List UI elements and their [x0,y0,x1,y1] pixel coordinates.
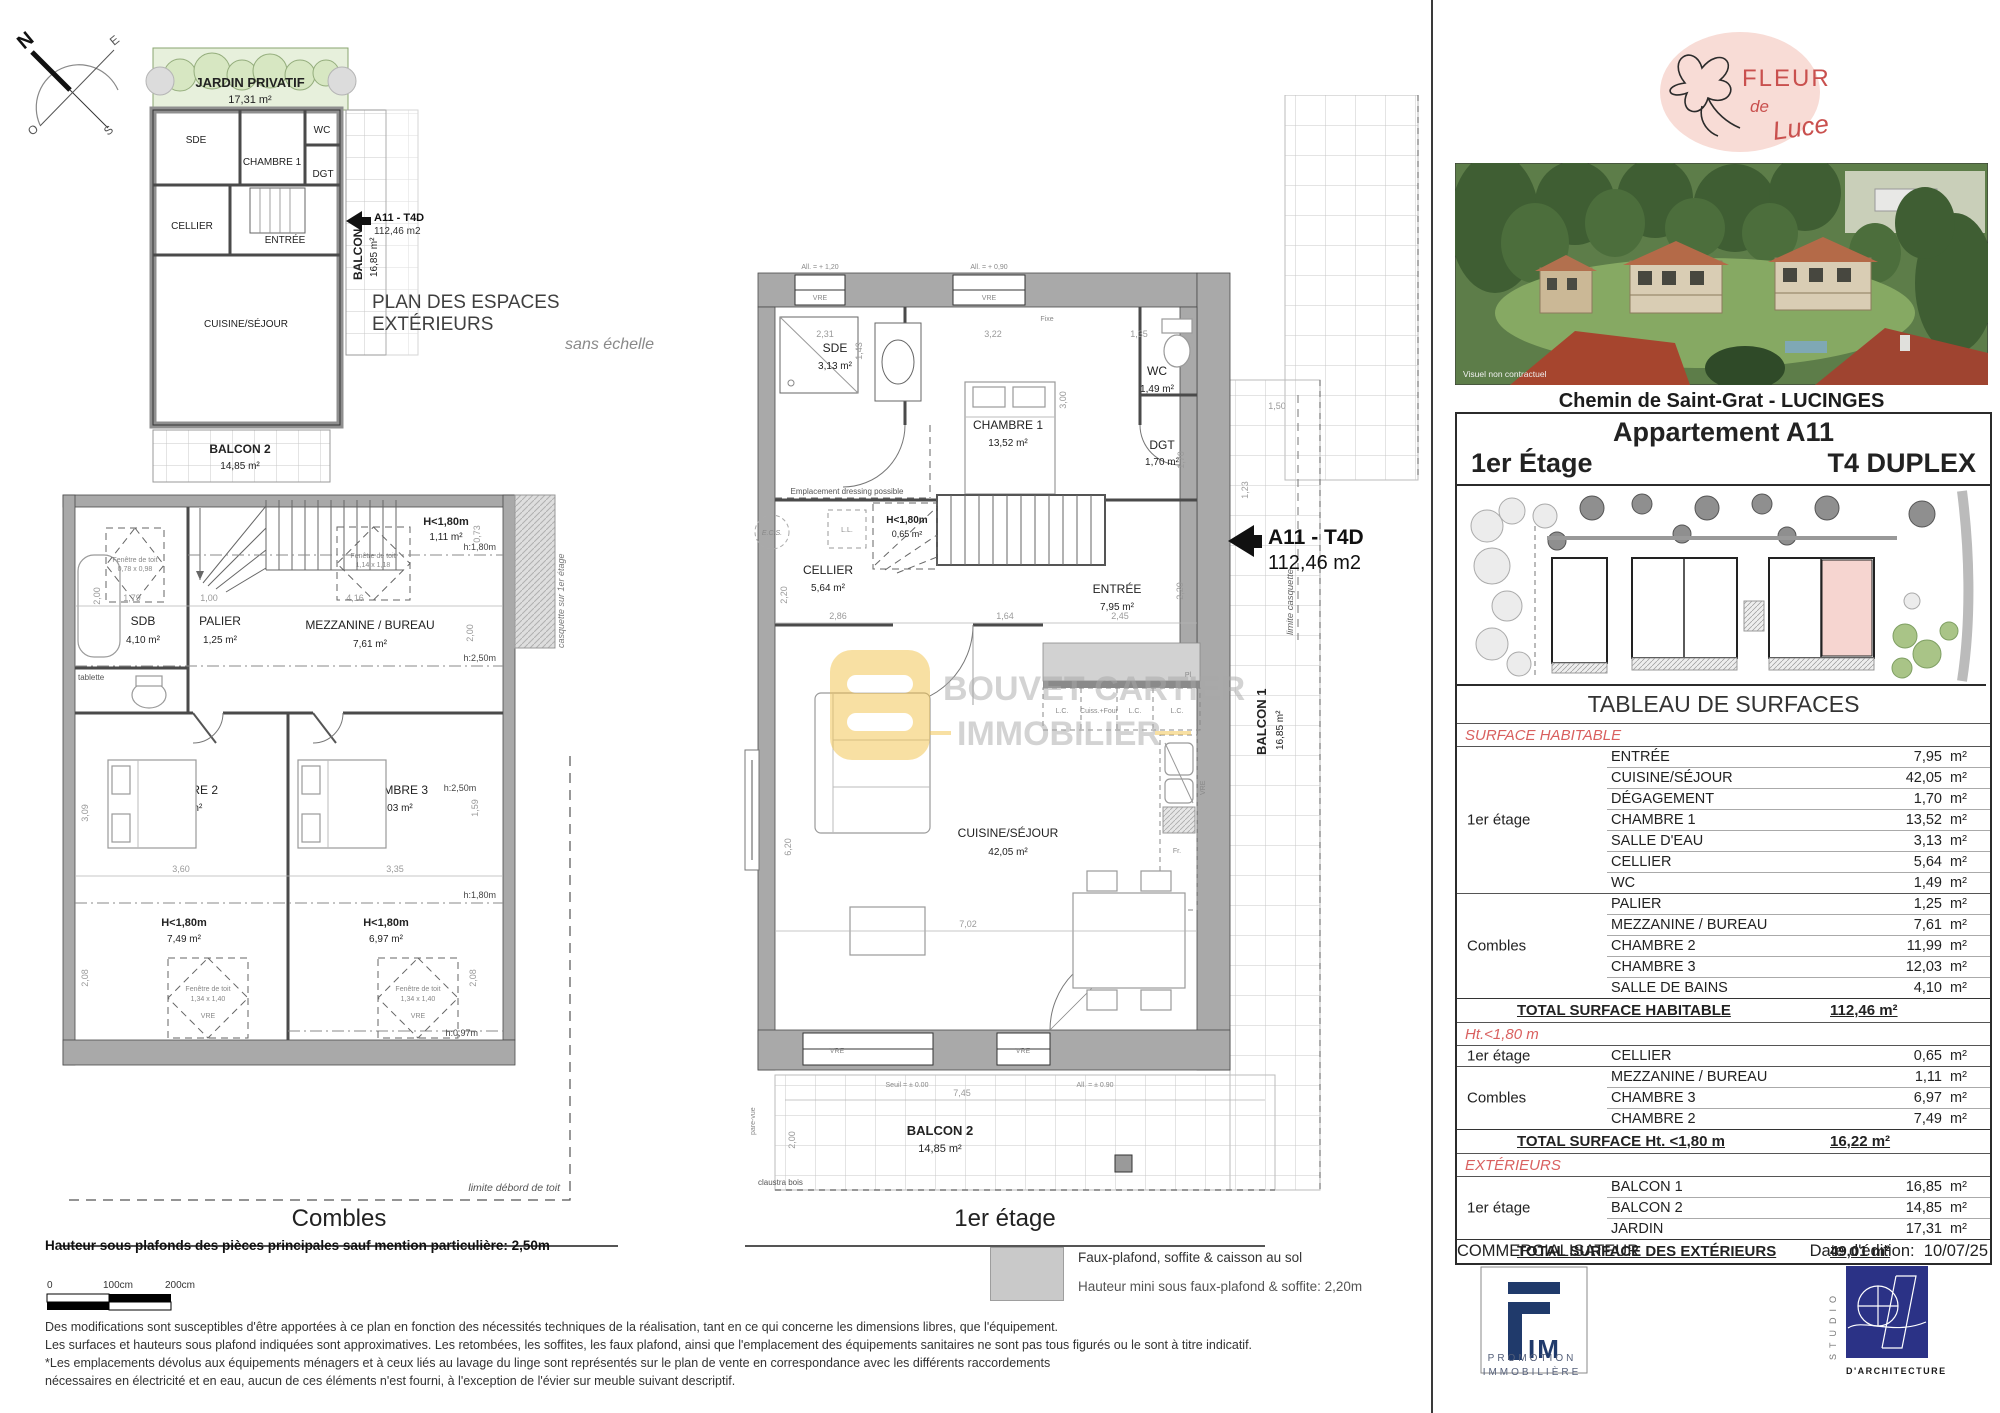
room-wc-area: 1,49 m² [1140,384,1175,395]
project-photo: Visuel non contractuel [1455,163,1988,385]
group-hab-1er: 1er étage ENTRÉE7,95m² CUISINE/SÉJOUR42,… [1457,746,1990,893]
table-row: BALCON 116,85m² [1607,1177,1990,1197]
balcon2-area [153,430,330,482]
dim: 1,79 [123,593,141,603]
row-unit: m² [1942,1069,1990,1085]
table-row: CHAMBRE 312,03m² [1607,956,1990,977]
dim: 2,20 [1175,582,1185,600]
hline-180b: h:1,80m [463,890,496,900]
balcon1-area [1230,380,1320,1190]
lowheight-area: 1,11 m² [429,532,463,543]
section-ht180: Ht.<1,80 m [1457,1022,1990,1045]
row-unit: m² [1942,791,1990,807]
apartment-type: T4 DUPLEX [1827,448,1976,479]
room-chambre1-area: 13,52 m² [988,438,1028,449]
total-label: TOTAL SURFACE Ht. <1,80 m [1457,1133,1830,1150]
roof-limit-label: limite débord de toit [468,1182,561,1194]
dim: 1,43 [854,342,864,360]
legend-swatch [990,1247,1064,1301]
compass-n: N [13,28,38,54]
row-room: JARDIN [1607,1221,1870,1237]
compass-o: O [25,122,41,139]
row-value: 13,52 [1870,812,1942,828]
dim: 2,00 [465,624,475,642]
row-unit: m² [1942,1200,1990,1216]
total-label: TOTAL SURFACE HABITABLE [1457,1002,1830,1019]
scale-bar: 0 100cm 200cm [45,1278,265,1320]
allege-note: All. = ± 0.90 [1076,1082,1113,1089]
window-vre: VRE [1200,780,1207,795]
row-value: 16,85 [1870,1179,1942,1195]
surface-table-title: TABLEAU DE SURFACES [1457,686,1990,724]
floor-label: 1er étage [1467,812,1530,829]
row-unit: m² [1942,833,1990,849]
balcon2-area [775,1075,1275,1190]
table-row: SALLE D'EAU3,13m² [1607,830,1990,851]
dim: 1,64 [996,611,1014,621]
exterior-plan-subtitle: sans échelle [372,336,654,354]
room-entree: ENTRÉE [265,233,306,246]
table-row: CHAMBRE 211,99m² [1607,935,1990,956]
unit-marker-area: 112,46 m2 [1268,552,1361,574]
row-value: 3,13 [1870,833,1942,849]
window-vre: VRE [1016,1048,1031,1055]
ceiling-height-note: Hauteur sous plafonds des pièces princip… [45,1238,550,1253]
ll-label: L.L. [841,527,853,534]
row-unit: m² [1942,1221,1990,1237]
roof-window-label: Fenêtre de toit [350,553,395,560]
exterior-spaces-plan: JARDIN PRIVATIF 17,31 m² SDE CHAMBRE 1 W… [100,25,660,495]
row-value: 0,65 [1870,1048,1942,1064]
disclaimer-line: *Les emplacements dévolus aux équipement… [45,1354,1385,1372]
row-room: CUISINE/SÉJOUR [1607,770,1870,786]
room-cellier-area: 5,64 m² [811,583,846,594]
room-cuisine: CUISINE/SÉJOUR [958,825,1059,840]
total-value: 16,22 m² [1830,1133,1990,1150]
row-unit: m² [1942,749,1990,765]
hline-097: h:0,97m [445,1028,478,1038]
balcon1-label: BALCON 1 [1254,689,1269,755]
dim: 7,45 [953,1088,971,1098]
row-unit: m² [1942,854,1990,870]
lowheight-label: H<1,80m [886,515,928,526]
row-value: 1,70 [1870,791,1942,807]
table-row: MEZZANINE / BUREAU7,61m² [1607,914,1990,935]
lowheight3-label: H<1,80m [363,917,409,929]
lowheight-label: H<1,80m [423,516,469,528]
combles-title-text: Combles [292,1205,387,1232]
row-room: SALLE D'EAU [1607,833,1870,849]
fixe-note: Fixe [1040,316,1053,323]
dim: 1,50 [1268,401,1286,411]
ecs-label: E.C.S. [762,530,782,537]
dim: 2,08 [80,969,90,987]
tree-icon [328,67,356,95]
brand-de: de [1750,97,1769,116]
roof-window-label: Fenêtre de toit [395,986,440,993]
row-room: WC [1607,875,1870,891]
floor-label: 1er étage [1467,1048,1530,1065]
apartment-card: Appartement A11 1er Étage T4 DUPLEX [1455,412,1992,1265]
room-chambre1: CHAMBRE 1 [243,157,302,168]
total-ht180: TOTAL SURFACE Ht. <1,80 m 16,22 m² [1457,1129,1990,1153]
group-ht-1er: 1er étage CELLIER0,65m² [1457,1045,1990,1066]
scale-200: 200cm [165,1280,195,1291]
exterior-plan-title: PLAN DES ESPACES EXTÉRIEURS [372,292,654,336]
row-value: 12,03 [1870,959,1942,975]
dim: 3,09 [80,804,90,822]
room-sde-area: 3,13 m² [818,361,853,372]
brand-logo: FLEUR de Luce [1590,28,1840,158]
dim: 3,00 [1058,391,1068,409]
dim: 2,08 [468,969,478,987]
row-value: 17,31 [1870,1221,1942,1237]
jardin-area-label: 17,31 m² [228,94,272,106]
room-mezzanine: MEZZANINE / BUREAU [305,618,434,632]
hline-250b: h:2,50m [444,783,477,793]
fim-line1: PROMOTION [1472,1352,1592,1366]
window-vre: VRE [830,1048,845,1055]
row-room: CELLIER [1607,1048,1870,1064]
roof-window-vre: VRE [201,1013,216,1020]
site-plan [1457,486,1986,686]
room-dgt: DGT [1149,438,1175,452]
row-value: 7,61 [1870,917,1942,933]
room-dgt-area: 1,70 m² [1145,457,1180,468]
table-row: WC1,49m² [1607,872,1990,893]
row-unit: m² [1942,896,1990,912]
balcon1-area-label: 16,85 m² [369,237,380,277]
roof-window-size: 1,14 x 1,18 [356,562,391,569]
kitchen-lc: L.C. [1171,708,1184,715]
row-unit: m² [1942,1179,1990,1195]
group-ht-combles: Combles MEZZANINE / BUREAU1,11m² CHAMBRE… [1457,1066,1990,1129]
brand-fleur: FLEUR [1742,65,1831,92]
row-room: DÉGAGEMENT [1607,791,1870,807]
room-sdb: SDB [131,614,156,628]
table-row: CHAMBRE 27,49m² [1607,1108,1990,1129]
commercial-label: COMMERCIALISATEUR [1457,1242,1639,1261]
dim: 2,00 [92,587,102,605]
exterior-plan-title-block: PLAN DES ESPACES EXTÉRIEURS sans échelle [372,292,654,354]
row-room: MEZZANINE / BUREAU [1607,1069,1870,1085]
claustra-note: claustra bois [758,1178,803,1187]
dim: 3,60 [172,864,190,874]
dim: 2,31 [816,329,834,339]
room-chambre1: CHAMBRE 1 [973,418,1043,432]
roof-window-size: 0,78 x 0,98 [118,566,153,573]
apartment-title: Appartement A11 [1457,414,1990,448]
balcon2-label: BALCON 2 [907,1123,973,1138]
table-row: ENTRÉE7,95m² [1607,747,1990,767]
room-cuisine-area: 42,05 m² [988,847,1028,858]
table-row: JARDIN17,31m² [1607,1218,1990,1239]
room-palier: PALIER [199,614,241,628]
floor-label: 1er étage [1467,1200,1530,1217]
dim: 0,73 [472,525,482,543]
row-unit: m² [1942,959,1990,975]
row-value: 4,10 [1870,980,1942,996]
table-row: CELLIER5,64m² [1607,851,1990,872]
room-wc: WC [314,125,331,136]
casquette-note: casquette sur 1er étage [556,553,566,648]
floor-label: Combles [1467,938,1526,955]
dim: 2,45 [1111,611,1129,621]
roof-window-label: Fenêtre de toit [185,986,230,993]
roof-window-label: Fenêtre de toit [112,557,157,564]
row-unit: m² [1942,1048,1990,1064]
parevue-note: pare-vue [750,1107,757,1135]
dim: 1,35 [1130,329,1148,339]
group-ext-1er: 1er étage BALCON 116,85m² BALCON 214,85m… [1457,1176,1990,1239]
dim: 3,22 [984,329,1002,339]
table-row: CHAMBRE 113,52m² [1607,809,1990,830]
room-sde: SDE [186,135,207,146]
roof-window-size: 1,34 x 1,40 [191,996,226,1003]
row-unit: m² [1942,875,1990,891]
lowheight2-label: H<1,80m [161,917,207,929]
row-value: 7,49 [1870,1111,1942,1127]
dim: 4,16 [346,593,364,603]
studio-logo: STUDIO D'ARCHITECTURE [1818,1258,1948,1388]
room-wc: WC [1147,364,1167,378]
watermark-line1: BOUVET CARTIER [943,670,1245,708]
disclaimer-line: Des modifications sont susceptibles d'êt… [45,1318,1385,1336]
dim: 2,20 [779,586,789,604]
row-value: 14,85 [1870,1200,1942,1216]
photo-caption: Visuel non contractuel [1463,369,1547,379]
row-room: ENTRÉE [1607,749,1870,765]
row-unit: m² [1942,770,1990,786]
floor-label: Combles [1467,1090,1526,1107]
room-sdb-area: 4,10 m² [126,635,161,646]
table-row: BALCON 214,85m² [1607,1197,1990,1218]
jardin-label: JARDIN PRIVATIF [195,75,304,90]
row-value: 1,25 [1870,896,1942,912]
legend-line1: Faux-plafond, soffite & caisson au sol [1078,1250,1302,1265]
group-hab-combles: Combles PALIER1,25m² MEZZANINE / BUREAU7… [1457,893,1990,998]
unit-marker-area: 112,46 m2 [374,226,421,237]
total-habitable: TOTAL SURFACE HABITABLE 112,46 m² [1457,998,1990,1022]
table-row: SALLE DE BAINS4,10m² [1607,977,1990,998]
balcon1-area-label: 16,85 m² [1275,710,1286,750]
row-room: CHAMBRE 3 [1607,1090,1870,1106]
row-room: CHAMBRE 3 [1607,959,1870,975]
allege-note: All. = + 1,20 [801,264,838,271]
table-row: CELLIER0,65m² [1607,1046,1990,1066]
scale-100: 100cm [103,1280,133,1291]
section-exterieurs: EXTÉRIEURS [1457,1153,1990,1176]
row-unit: m² [1942,938,1990,954]
room-sde: SDE [823,341,848,355]
studio-label: D'ARCHITECTURE [1846,1366,1947,1376]
fim-line2: IMMOBILIÈRE [1472,1366,1592,1380]
dim: 7,02 [959,919,977,929]
tablette-label: tablette [78,673,105,682]
lowheight2-area: 7,49 m² [167,934,202,945]
table-row: CUISINE/SÉJOUR42,05m² [1607,767,1990,788]
highlighted-unit [1822,560,1872,656]
first-floor-title-text: 1er étage [954,1205,1055,1232]
section-habitable: SURFACE HABITABLE [1457,724,1990,746]
watermark-line2: IMMOBILIER [957,715,1161,753]
table-row: PALIER1,25m² [1607,894,1990,914]
room-cellier: CELLIER [803,563,853,577]
roof-window-size: 1,34 x 1,40 [401,996,436,1003]
row-unit: m² [1942,1111,1990,1127]
discl aimer-line: Les surfaces et hauteurs sous plafond in… [45,1336,1385,1354]
hline-250: h:2,50m [463,653,496,663]
row-room: BALCON 1 [1607,1179,1870,1195]
dim: 2,86 [829,611,847,621]
kitchen-fr: Fr. [1173,848,1181,855]
first-floor-title: 1er étage [745,1205,1265,1247]
row-value: 7,95 [1870,749,1942,765]
room-palier-area: 1,25 m² [203,635,238,646]
row-value: 11,99 [1870,938,1942,954]
dressing-note: Emplacement dressing possible [791,487,904,496]
kitchen-lc: L.C. [1129,708,1142,715]
total-value: 112,46 m² [1830,1002,1990,1019]
room-cellier: CELLIER [171,221,213,232]
balcon2-area-label: 14,85 m² [918,1143,962,1155]
dim: 1,00 [200,593,218,603]
brand-luce: Luce [1771,108,1831,146]
legend-line2: Hauteur mini sous faux-plafond & soffite… [1078,1279,1362,1294]
row-unit: m² [1942,812,1990,828]
disclaimer-line: nécessaires en électricité et en eau, au… [45,1372,1385,1390]
room-dgt: DGT [312,169,333,180]
lowheight3-area: 6,97 m² [369,934,404,945]
row-value: 1,11 [1870,1069,1942,1085]
table-row: DÉGAGEMENT1,70m² [1607,788,1990,809]
first-floor-plan: limite casquette VRE VRE All. = + 1,20 A… [725,95,1435,1255]
dim: 1,70 [1176,451,1186,469]
tree-icon [146,67,174,95]
row-room: CHAMBRE 1 [1607,812,1870,828]
allege-note: All. = + 0,90 [970,264,1007,271]
kitchen-cuiss: Cuiss.+Four [1080,708,1119,715]
kitchen-lc: L.C. [1056,708,1069,715]
table-row: MEZZANINE / BUREAU1,11m² [1607,1067,1990,1087]
row-unit: m² [1942,980,1990,996]
room-mezzanine-area: 7,61 m² [353,639,388,650]
dim: 3,35 [386,864,404,874]
panel-divider [1431,0,1433,1413]
row-room: SALLE DE BAINS [1607,980,1870,996]
row-unit: m² [1942,1090,1990,1106]
dim: 1,23 [1240,481,1250,499]
room-entree: ENTRÉE [1093,581,1142,596]
unit-marker: A11 - T4D [1268,526,1364,549]
disclaimer-paragraph: Des modifications sont susceptibles d'êt… [45,1318,1385,1391]
unit-marker: A11 - T4D [374,212,424,224]
combles-plan: limite débord de toit casquette sur 1er … [48,488,638,1213]
row-room: CHAMBRE 2 [1607,1111,1870,1127]
row-unit: m² [1942,917,1990,933]
lowheight-area: 0,65 m² [892,529,923,539]
room-cuisine: CUISINE/SÉJOUR [204,317,288,330]
dim: 6,20 [783,838,793,856]
project-address: Chemin de Saint-Grat - LUCINGES [1455,390,1988,413]
scale-0: 0 [47,1280,53,1291]
row-room: CELLIER [1607,854,1870,870]
row-room: PALIER [1607,896,1870,912]
window-vre: VRE [813,295,828,302]
row-room: CHAMBRE 2 [1607,938,1870,954]
row-value: 5,64 [1870,854,1942,870]
row-value: 42,05 [1870,770,1942,786]
row-value: 6,97 [1870,1090,1942,1106]
limite-casquette: limite casquette [1285,569,1296,635]
studio-vertical: STUDIO [1828,1290,1838,1360]
table-row: CHAMBRE 36,97m² [1607,1087,1990,1108]
balcon2-label: BALCON 2 [209,442,271,456]
roof-window-vre: VRE [411,1013,426,1020]
row-value: 1,49 [1870,875,1942,891]
row-room: MEZZANINE / BUREAU [1607,917,1870,933]
seuil-note: Seuil = ± 0.00 [886,1082,929,1089]
apartment-floor: 1er Étage [1471,448,1593,479]
dim: 2,00 [787,1131,797,1149]
window-vre: VRE [982,295,997,302]
dim: 1,59 [470,799,480,817]
row-room: BALCON 2 [1607,1200,1870,1216]
balcon2-area-label: 14,85 m² [220,461,260,472]
